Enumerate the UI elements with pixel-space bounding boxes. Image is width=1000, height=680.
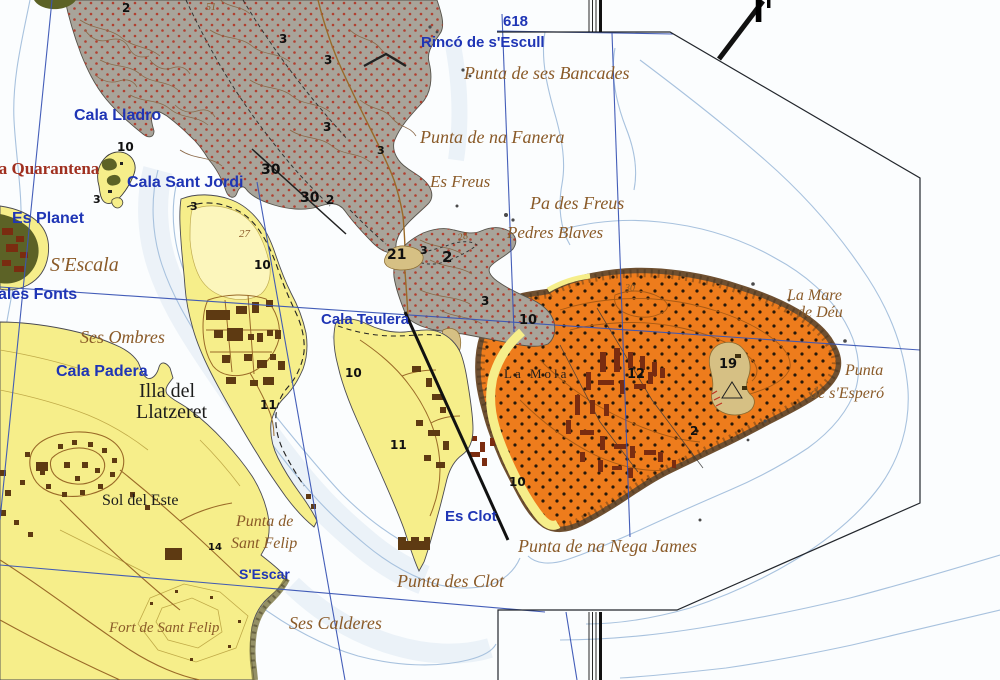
label-punta-de-s-espero-2: de s'Esperó xyxy=(810,386,884,402)
spot-2-mola: 2 xyxy=(690,425,698,437)
label-s-escala: S'Escala xyxy=(50,255,119,275)
label-punta-de-ses-bancades: Punta de ses Bancades xyxy=(464,64,629,82)
spot-14: 14 xyxy=(208,543,222,553)
label-punta-des-clot: Punta des Clot xyxy=(397,572,504,590)
spot-3-a: 3 xyxy=(279,33,287,45)
label-es-clot: Es Clot xyxy=(445,509,497,524)
spot-10-island: 10 xyxy=(254,259,271,271)
spot-12: 12 xyxy=(627,368,645,381)
label-fort-de-sant-felip: Fort de Sant Felip xyxy=(109,621,219,636)
label-es-planet: Es Planet xyxy=(12,211,84,227)
spot-3-c: 3 xyxy=(323,121,331,133)
label-es-freus: Es Freus xyxy=(430,173,490,190)
spot-3-fanera: 3 xyxy=(377,145,385,156)
label-punta-de-sant-felip-1: Punta de xyxy=(236,514,293,530)
label-rinco-de-s-escull: Rincó de s'Escull xyxy=(421,35,545,50)
spot-10-mola-nw: 10 xyxy=(519,314,537,327)
label-llatzeret: Llatzeret xyxy=(136,402,207,422)
label-cala-lladro: Cala Lladro xyxy=(74,108,161,124)
label-punta-de-sant-felip-2: Sant Felip xyxy=(231,536,297,552)
spot-10-islet: 10 xyxy=(117,141,134,153)
label-cala-sant-jordi: Cala Sant Jordi xyxy=(127,175,243,191)
spot-11-island: 11 xyxy=(260,399,277,411)
label-cala-teulera: Cala Teulera xyxy=(321,312,409,327)
contour-51: 51 xyxy=(206,3,216,13)
spot-19: 19 xyxy=(719,358,737,371)
spot-10-peninsula: 10 xyxy=(345,367,362,379)
spot-2-b: 2 xyxy=(326,194,334,206)
spot-11-peninsula: 11 xyxy=(390,439,407,451)
spot-3-islet: 3 xyxy=(93,194,101,205)
label-de-deu: de Déu xyxy=(797,305,843,321)
spot-21: 21 xyxy=(387,248,406,262)
map-canvas: 618Rincó de s'EscullPunta de ses Bancade… xyxy=(0,0,1000,680)
label-section-i-prime: I' xyxy=(753,0,773,28)
label-la-mola: La Mola xyxy=(504,367,569,380)
label-punta-de-na-nega-james: Punta de na Nega James xyxy=(518,537,697,555)
spot-3-d: 3 xyxy=(420,245,428,256)
label-pa-des-freus: Pa des Freus xyxy=(530,194,624,212)
label-ses-ombres: Ses Ombres xyxy=(80,328,165,346)
label-cala-padera: Cala Padera xyxy=(56,364,148,380)
label-s-escar: S'Escar xyxy=(239,567,290,581)
label-punta-de-na-fanera: Punta de na Fanera xyxy=(420,128,564,146)
contour-30-mola: 30 xyxy=(625,284,635,294)
spot-30-a: 30 xyxy=(261,163,280,177)
label-ses-calderes: Ses Calderes xyxy=(289,614,382,632)
spot-3-island: 3 xyxy=(190,201,198,212)
spot-2-a: 2 xyxy=(122,2,130,14)
contour-27: 27 xyxy=(239,229,250,240)
spot-30-b: 30 xyxy=(300,191,319,205)
label-punta-de-s-espero-1: Punta xyxy=(845,363,883,379)
spot-3-b: 3 xyxy=(324,54,332,66)
map-labels: 618Rincó de s'EscullPunta de ses Bancade… xyxy=(0,0,1000,680)
spot-2-c: 2 xyxy=(442,250,452,265)
label-sol-del-este: Sol del Este xyxy=(102,493,178,509)
label-la-quarantena: la Quarantena xyxy=(0,160,99,177)
label-illa-del: Illa del xyxy=(139,381,195,401)
spot-3-e: 3 xyxy=(481,295,489,307)
label-ales-fonts: ales Fonts xyxy=(0,287,77,303)
label-618: 618 xyxy=(503,14,528,29)
label-pedres-blaves: Pedres Blaves xyxy=(507,224,603,241)
contour-28: 28 xyxy=(457,231,469,243)
label-la-mare: La Mare xyxy=(787,288,842,304)
spot-10-mola-s: 10 xyxy=(509,476,526,488)
